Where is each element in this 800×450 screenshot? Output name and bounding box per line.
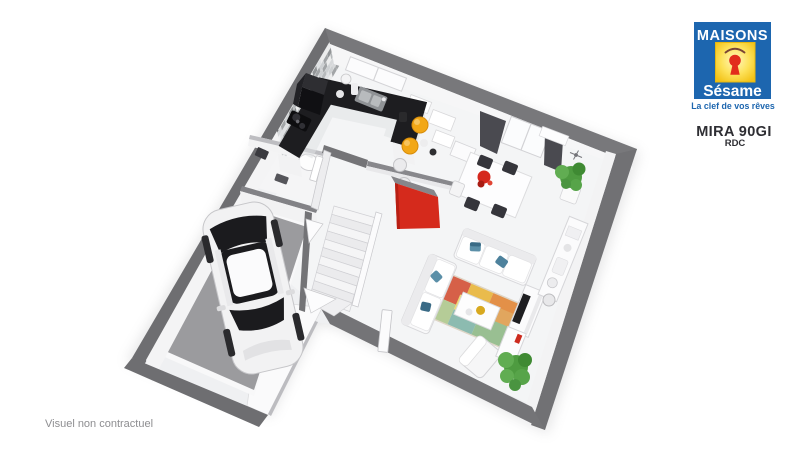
svg-text:Visuel non contractuel: Visuel non contractuel: [45, 418, 153, 430]
svg-text:MAISONS: MAISONS: [697, 28, 768, 44]
svg-text:RDC: RDC: [725, 138, 746, 149]
svg-text:Sésame: Sésame: [703, 83, 762, 100]
svg-text:La clef de vos rêves: La clef de vos rêves: [691, 101, 775, 111]
